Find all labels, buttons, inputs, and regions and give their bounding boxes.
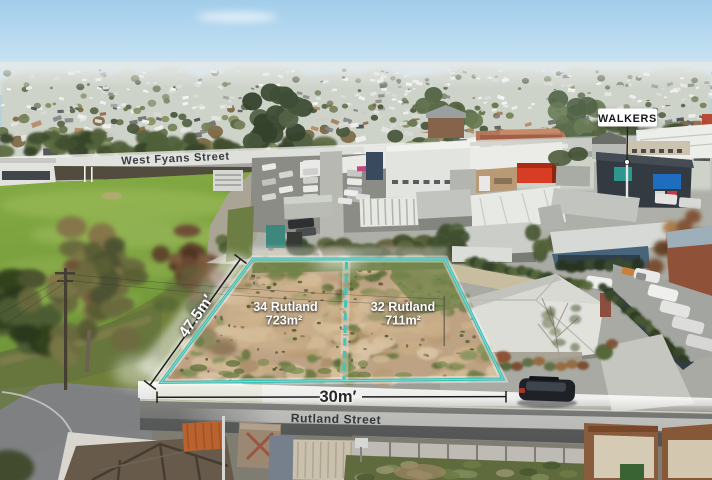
- svg-text:Rutland Street: Rutland Street: [291, 411, 382, 427]
- svg-text:711m²: 711m²: [385, 314, 421, 328]
- svg-text:32 Rutland: 32 Rutland: [371, 300, 435, 314]
- svg-text:WALKERS: WALKERS: [598, 113, 657, 125]
- svg-text:34 Rutland: 34 Rutland: [253, 300, 317, 314]
- svg-text:723m²: 723m²: [266, 314, 302, 328]
- svg-text:30m′: 30m′: [320, 388, 357, 406]
